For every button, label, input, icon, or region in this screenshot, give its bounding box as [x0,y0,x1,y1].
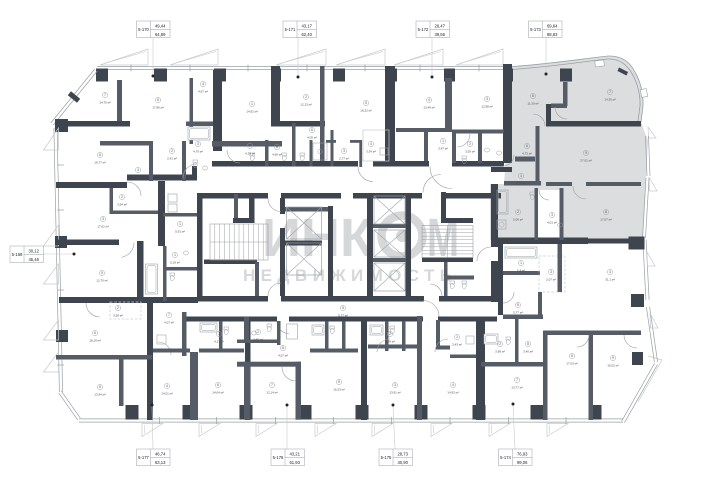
svg-text:14,01 м²: 14,01 м² [161,392,172,396]
svg-text:1: 1 [456,335,458,339]
svg-text:2: 2 [121,195,123,199]
svg-text:17,07 м²: 17,07 м² [600,218,611,222]
svg-text:69,64: 69,64 [547,24,558,29]
svg-text:5-171: 5-171 [285,27,296,32]
svg-text:6: 6 [526,144,528,148]
svg-text:2: 2 [499,342,501,346]
svg-text:13,77 м²: 13,77 м² [511,386,522,390]
svg-text:3: 3 [551,213,553,217]
svg-text:13,49 м²: 13,49 м² [423,106,434,110]
svg-text:12,70 м²: 12,70 м² [96,279,107,283]
svg-text:14,04 м²: 14,04 м² [212,391,223,395]
svg-text:3,47 м²: 3,47 м² [438,147,448,151]
svg-text:6: 6 [94,331,96,335]
svg-text:2,07 м²: 2,07 м² [546,278,556,282]
svg-text:14,92 м²: 14,92 м² [246,110,257,114]
svg-text:6: 6 [99,153,101,157]
svg-text:3,98 м²: 3,98 м² [495,350,505,354]
svg-text:1: 1 [174,253,176,257]
svg-text:5,19 м²: 5,19 м² [170,261,180,265]
svg-text:1: 1 [251,102,253,106]
svg-text:16,77 м²: 16,77 м² [94,161,105,165]
svg-text:4,66 м²: 4,66 м² [272,153,282,157]
svg-text:5-176: 5-176 [273,455,284,460]
svg-text:4: 4 [609,270,611,274]
svg-text:8: 8 [276,145,278,149]
svg-text:5: 5 [365,101,367,105]
svg-text:88,83: 88,83 [547,32,558,37]
svg-text:61,93: 61,93 [289,460,300,465]
svg-text:15,02 м²: 15,02 м² [607,364,618,368]
svg-text:4,50 м²: 4,50 м² [516,182,526,186]
svg-text:5-173: 5-173 [530,27,541,32]
svg-text:5: 5 [99,385,101,389]
svg-text:1: 1 [179,222,181,226]
svg-text:5: 5 [157,98,159,102]
svg-text:28,73: 28,73 [397,452,408,457]
svg-text:2,77 м²: 2,77 м² [339,157,349,161]
svg-text:7: 7 [609,90,611,94]
svg-text:62,40: 62,40 [301,32,312,37]
svg-text:5,06 м²: 5,06 м² [513,218,523,222]
svg-text:3,43 м²: 3,43 м² [452,343,462,347]
svg-text:4,79 м²: 4,79 м² [193,150,203,154]
svg-text:6: 6 [532,94,534,98]
svg-text:9: 9 [585,151,587,155]
svg-text:18,19 м²: 18,19 м² [89,339,100,343]
svg-text:5-177: 5-177 [138,455,149,460]
svg-text:2: 2 [171,149,173,153]
svg-text:12,98 м²: 12,98 м² [481,105,492,109]
svg-text:8: 8 [282,346,284,350]
svg-text:4,39 м²: 4,39 м² [245,152,255,156]
svg-text:5,28 м²: 5,28 м² [385,340,395,344]
svg-text:49,44: 49,44 [155,24,166,29]
svg-text:5-170: 5-170 [138,27,149,32]
svg-text:43,21: 43,21 [289,452,300,457]
svg-text:4,07 м²: 4,07 м² [278,354,288,358]
svg-text:4,05 м²: 4,05 м² [307,136,317,140]
svg-text:7: 7 [104,93,106,97]
svg-text:ИНК: ИНК [262,208,374,268]
svg-text:13,91 м²: 13,91 м² [389,391,400,395]
svg-text:5-169: 5-169 [12,252,23,257]
svg-text:12,13 м²: 12,13 м² [300,103,311,107]
svg-text:17,86 м²: 17,86 м² [152,106,163,110]
svg-text:2: 2 [117,306,119,310]
svg-text:8: 8 [527,342,529,346]
svg-text:1: 1 [442,139,444,143]
svg-text:4: 4 [428,98,430,102]
svg-text:4,73 м²: 4,73 м² [522,152,532,156]
svg-text:26,47: 26,47 [434,24,445,29]
svg-text:3: 3 [218,332,220,336]
svg-text:5: 5 [517,303,519,307]
svg-text:3: 3 [394,383,396,387]
svg-text:17,62 м²: 17,62 м² [97,225,108,229]
svg-text:9: 9 [612,356,614,360]
svg-text:5,77 м²: 5,77 м² [338,314,348,318]
svg-text:3,54 м²: 3,54 м² [117,203,127,207]
svg-text:7: 7 [516,378,518,382]
svg-text:6: 6 [311,128,313,132]
svg-text:5,91 м²: 5,91 м² [175,230,185,234]
svg-text:27,02 м²: 27,02 м² [580,159,591,163]
svg-text:7: 7 [249,144,251,148]
svg-text:2: 2 [389,332,391,336]
svg-text:4,60 м²: 4,60 м² [253,338,263,342]
svg-text:2: 2 [257,330,259,334]
svg-text:2: 2 [517,210,519,214]
svg-text:4,07 м²: 4,07 м² [164,321,174,325]
svg-text:4: 4 [452,383,454,387]
svg-text:4: 4 [370,142,372,146]
svg-text:76,93: 76,93 [517,452,528,457]
svg-text:64,89: 64,89 [155,32,166,37]
svg-text:16,23 м²: 16,23 м² [333,388,344,392]
svg-text:8: 8 [605,210,607,214]
svg-text:5-175: 5-175 [381,455,392,460]
svg-text:4: 4 [166,384,168,388]
svg-text:13,94 м²: 13,94 м² [94,393,105,397]
svg-text:39,56: 39,56 [434,32,445,37]
svg-text:3,56 м²: 3,56 м² [133,176,143,180]
svg-text:11,30 м²: 11,30 м² [527,102,538,106]
svg-text:5: 5 [571,354,573,358]
svg-text:5: 5 [338,380,340,384]
svg-text:3,58 м²: 3,58 м² [113,314,123,318]
svg-text:3,39 м²: 3,39 м² [465,150,475,154]
svg-text:14,70 м²: 14,70 м² [99,101,110,105]
svg-text:63,13: 63,13 [155,460,166,465]
svg-text:4: 4 [137,168,139,172]
svg-text:7: 7 [168,313,170,317]
svg-text:14,92 м²: 14,92 м² [447,391,458,395]
svg-text:40,90: 40,90 [397,460,408,465]
svg-text:5: 5 [101,271,103,275]
svg-text:45,46: 45,46 [28,257,39,262]
svg-text:1: 1 [520,261,522,265]
svg-text:4: 4 [202,82,204,86]
svg-text:99,06: 99,06 [517,460,528,465]
svg-text:17,03 м²: 17,03 м² [566,362,577,366]
svg-text:3,34 м²: 3,34 м² [366,150,376,154]
svg-text:2: 2 [469,142,471,146]
svg-text:3: 3 [550,270,552,274]
svg-text:4,17 м²: 4,17 м² [214,340,224,344]
svg-text:4,01 м²: 4,01 м² [547,221,557,225]
svg-text:3: 3 [486,97,488,101]
svg-text:46,74: 46,74 [155,452,166,457]
svg-text:30,12: 30,12 [28,249,39,254]
svg-text:31,1 м²: 31,1 м² [605,278,615,282]
svg-text:5,4 м²: 5,4 м² [517,269,525,273]
svg-text:3: 3 [343,149,345,153]
svg-text:5-174: 5-174 [500,455,511,460]
svg-text:12,14 м²: 12,14 м² [266,391,277,395]
svg-text:2: 2 [305,95,307,99]
svg-text:14,35 м²: 14,35 м² [604,98,615,102]
svg-text:5: 5 [342,306,344,310]
svg-text:3: 3 [197,142,199,146]
svg-text:1: 1 [520,174,522,178]
svg-text:5,77 м²: 5,77 м² [513,311,523,315]
svg-text:6: 6 [217,383,219,387]
svg-text:5-172: 5-172 [418,27,429,32]
svg-text:16,22 м²: 16,22 м² [360,109,371,113]
svg-text:3: 3 [102,217,104,221]
svg-text:3,40 м²: 3,40 м² [523,350,533,354]
svg-text:2,41 м²: 2,41 м² [167,157,177,161]
svg-text:43,17: 43,17 [301,24,312,29]
svg-text:4,67 м²: 4,67 м² [198,90,208,94]
svg-text:7: 7 [271,383,273,387]
